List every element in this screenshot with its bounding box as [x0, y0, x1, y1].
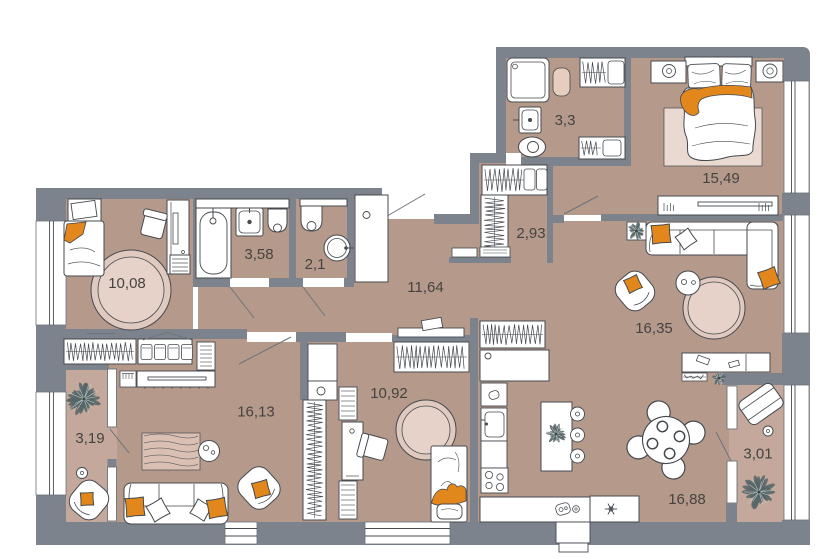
svg-text:3,3: 3,3 — [555, 112, 576, 129]
svg-text:16,88: 16,88 — [668, 491, 706, 508]
svg-text:11,64: 11,64 — [407, 279, 443, 296]
svg-text:10,08: 10,08 — [108, 275, 146, 292]
svg-text:15,49: 15,49 — [702, 170, 740, 187]
svg-text:3,58: 3,58 — [244, 246, 273, 263]
svg-text:2,93: 2,93 — [516, 225, 545, 242]
svg-text:16,35: 16,35 — [635, 320, 673, 337]
svg-text:16,13: 16,13 — [237, 403, 275, 420]
svg-text:3,01: 3,01 — [743, 445, 772, 462]
svg-text:2,1: 2,1 — [305, 256, 326, 273]
svg-text:3,19: 3,19 — [75, 430, 104, 447]
svg-text:10,92: 10,92 — [370, 385, 408, 402]
